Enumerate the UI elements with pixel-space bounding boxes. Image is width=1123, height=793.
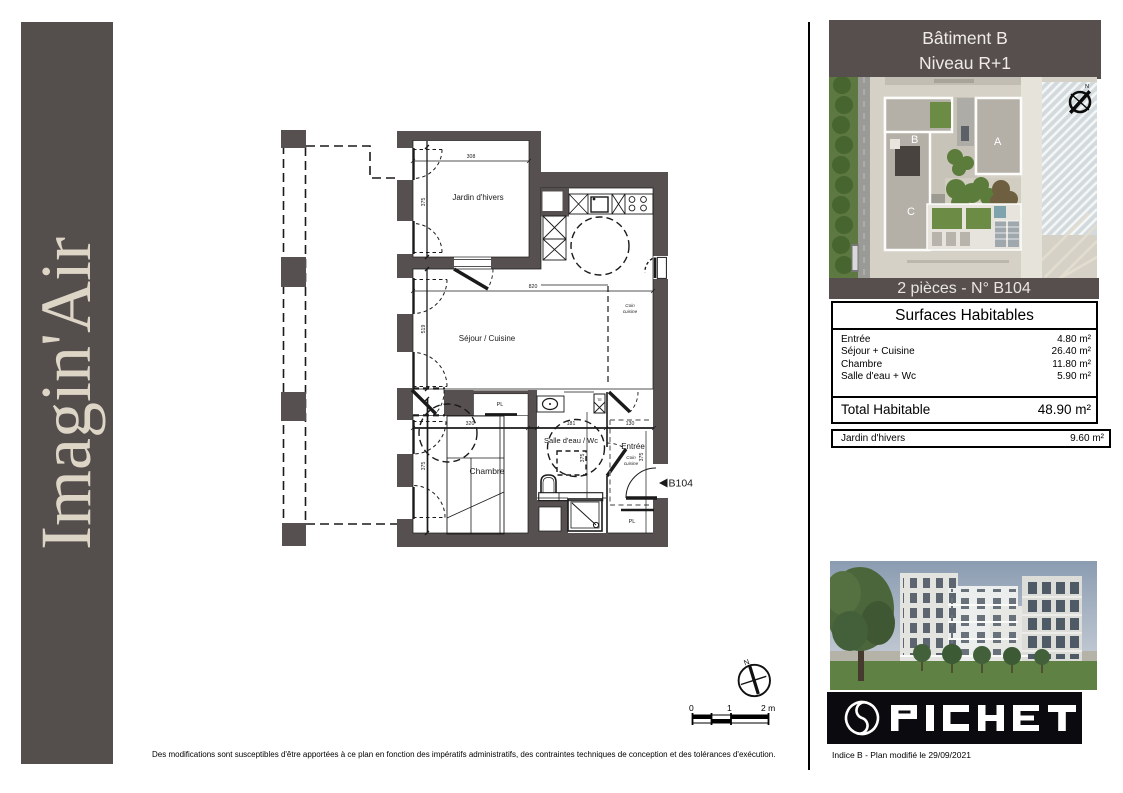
svg-text:519: 519 [421, 325, 427, 334]
svg-text:Chambre: Chambre [470, 466, 505, 476]
svg-text:B: B [911, 134, 918, 146]
svg-text:375: 375 [639, 453, 645, 462]
svg-text:N: N [743, 657, 751, 667]
svg-text:Jardin d'hivers: Jardin d'hivers [452, 193, 503, 202]
svg-text:N: N [1085, 84, 1089, 90]
svg-text:308: 308 [467, 154, 476, 160]
svg-text:130: 130 [626, 421, 635, 427]
svg-text:Coin: Coin [626, 455, 636, 460]
svg-text:375: 375 [421, 462, 427, 471]
svg-text:PL: PL [497, 402, 504, 408]
svg-text:A: A [994, 136, 1002, 148]
svg-text:181: 181 [567, 421, 576, 427]
svg-text:0: 0 [689, 703, 694, 713]
svg-text:1: 1 [727, 703, 732, 713]
svg-text:Coin: Coin [625, 303, 635, 308]
svg-text:TE: TE [597, 398, 602, 402]
svg-text:320: 320 [466, 421, 475, 427]
svg-text:cuisine: cuisine [623, 309, 638, 314]
svg-text:Salle d'eau / Wc: Salle d'eau / Wc [544, 436, 598, 445]
svg-text:C: C [907, 206, 915, 218]
svg-text:375: 375 [580, 454, 586, 463]
svg-text:375: 375 [421, 198, 427, 207]
svg-text:Séjour / Cuisine: Séjour / Cuisine [459, 334, 516, 343]
svg-text:PL: PL [629, 519, 636, 525]
svg-text:cuisine: cuisine [624, 461, 639, 466]
svg-text:B104: B104 [669, 478, 694, 490]
svg-text:Entrée: Entrée [621, 442, 645, 451]
svg-text:2 m: 2 m [761, 703, 775, 713]
svg-text:820: 820 [529, 284, 538, 290]
